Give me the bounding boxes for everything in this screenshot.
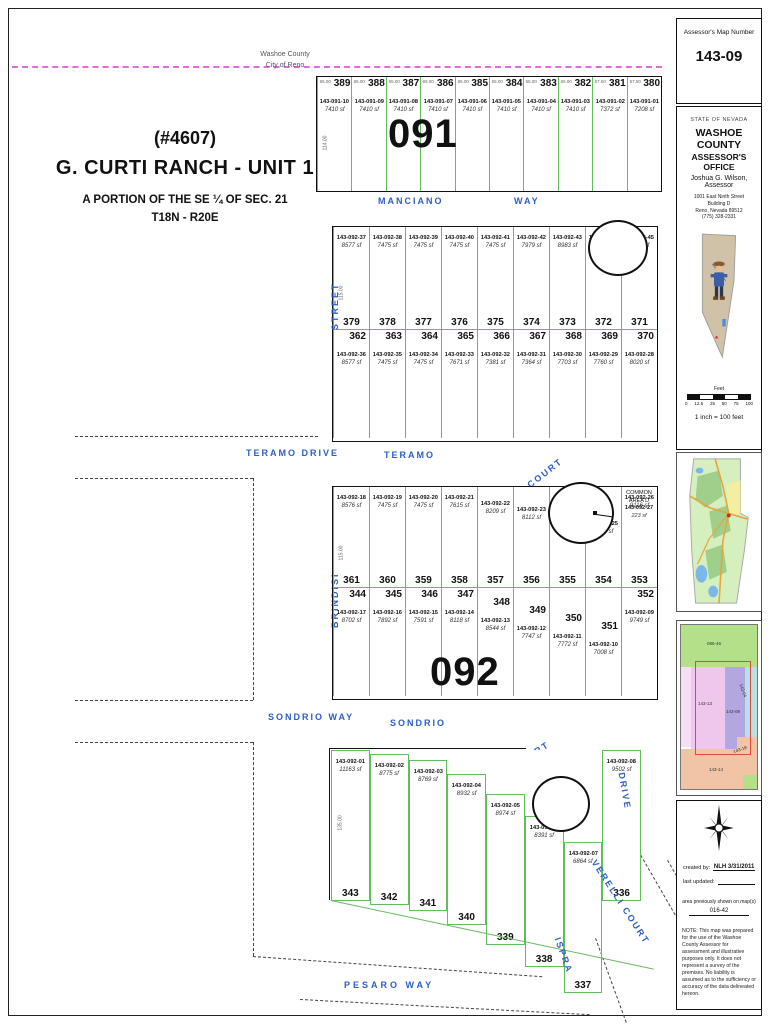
frontage-dimension: 65.00: [457, 79, 468, 84]
lot-number: 386: [437, 79, 454, 89]
lot-number: 361: [343, 576, 360, 586]
parcel-area: 7410 sf: [462, 107, 482, 113]
parcel-area: 7475 sf: [486, 243, 506, 249]
lot-number: 347: [457, 590, 474, 600]
parcel-cell: 143-092-20 7475 sf 359: [405, 487, 441, 587]
map-number-value: 143-09: [677, 48, 761, 65]
lot-number: 380: [643, 79, 660, 89]
road-dash: [253, 478, 254, 700]
parcel-apn: 143-092-03: [413, 769, 442, 775]
parcel-area: 7671 sf: [450, 360, 470, 366]
parcel-cell: 363 143-092-35 7475 sf: [369, 330, 405, 438]
scale-bar: [687, 394, 751, 400]
parcel-apn: 143-092-02: [375, 763, 404, 769]
road-dash: [75, 478, 253, 479]
parcel-cell: 369 143-092-29 7760 sf: [585, 330, 621, 438]
parcel-area: 8577 sf: [342, 360, 362, 366]
block-092-south: 143-092-01 11163 sf 343 143-092-02 8775 …: [331, 750, 641, 900]
parcel-area: 8576 sf: [342, 503, 362, 509]
lot-number: 377: [415, 318, 432, 328]
lot-number: 337: [575, 981, 592, 991]
parcel-apn: 143-092-23: [517, 507, 546, 513]
parcel-apn: 143-092-29: [589, 352, 618, 358]
parcel-apn: 143-092-39: [409, 235, 438, 241]
parcel-apn: 143-092-12: [517, 626, 546, 632]
parcel-apn: 143-092-41: [481, 235, 510, 241]
title-block: (#4607) G. CURTI RANCH - UNIT 1 A PORTIO…: [40, 128, 330, 224]
common-area-marker: [593, 511, 597, 515]
parcel-apn: 143-091-08: [389, 99, 418, 105]
parcel-apn: 143-092-40: [445, 235, 474, 241]
parcel-cell: 143-092-38 7475 sf 378: [369, 227, 405, 329]
parcel-cell: 65.00 388 143-091-09 7410 sf: [351, 77, 385, 191]
scale-bar-group: Feet 0 12.5 25 50 75 100 1 inch = 100 fe…: [677, 386, 761, 421]
common-area-size: 223 sf: [612, 513, 666, 521]
street-sondrio-way: SONDRIO WAY: [268, 712, 354, 722]
parcel-apn: 143-092-08: [607, 759, 636, 765]
section-description: A PORTION OF THE SE ¼ OF SEC. 21: [40, 194, 330, 206]
parcel-area: 8577 sf: [342, 243, 362, 249]
lot-number: 345: [385, 590, 402, 600]
county-locator-panel: [676, 452, 762, 612]
last-updated-value: [718, 884, 756, 885]
notes-panel: created by: NLH 3/31/2011 last updated: …: [676, 800, 762, 1010]
parcel-area: 11163 sf: [339, 767, 361, 773]
state-label: STATE OF NEVADA: [677, 117, 761, 123]
parcel-apn: 143-091-07: [423, 99, 452, 105]
lot-number: 384: [506, 79, 523, 89]
parcel-apn: 143-092-38: [373, 235, 402, 241]
map-number-label: Assessor's Map Number: [677, 29, 761, 36]
parcel-apn: 143-092-33: [445, 352, 474, 358]
parcel-cell: 143-092-19 7475 sf 360: [369, 487, 405, 587]
parcel-apn: 143-092-30: [553, 352, 582, 358]
county-locator-map: [680, 456, 758, 606]
parcel-apn: 143-092-21: [445, 495, 474, 501]
parcel-area: 7208 sf: [635, 107, 655, 113]
parcel-apn: 143-092-14: [445, 610, 474, 616]
scale-ticks: 0 12.5 25 50 75 100: [685, 401, 753, 406]
common-area-apn: 143-092-27: [612, 505, 666, 513]
parcel-apn: 143-092-42: [517, 235, 546, 241]
lot-number: 364: [421, 332, 438, 342]
parcel-apn: 143-091-01: [630, 99, 659, 105]
index-label-bottom-left: 143-14: [709, 767, 723, 772]
parcel-apn: 143-092-18: [337, 495, 366, 501]
parcel-apn: 143-092-04: [452, 783, 481, 789]
created-by-row: created by: NLH 3/31/2011: [683, 864, 755, 871]
street-manciano-way: WAY: [514, 196, 540, 206]
lot-number: 349: [529, 606, 546, 616]
road-dash: [75, 742, 253, 743]
lot-number: 366: [493, 332, 510, 342]
lot-number: 354: [595, 576, 612, 586]
frontage-dimension: 65.00: [320, 79, 331, 84]
parcel-apn: 143-092-09: [625, 610, 654, 616]
culdesac-bulb: [548, 482, 614, 544]
parcel-area: 8544 sf: [486, 626, 506, 632]
county-label: WASHOE COUNTY: [677, 127, 761, 151]
street-manciano: MANCIANO: [378, 196, 444, 206]
street-sondrio: SONDRIO: [390, 718, 446, 728]
parcel-area: 7892 sf: [378, 618, 398, 624]
parcel-cell: 143-092-02 8775 sf 342: [370, 754, 409, 905]
parcel-area: 8974 sf: [496, 811, 516, 817]
parcel-cell: 143-092-03 8769 sf 341: [409, 760, 448, 911]
municipal-boundary-label: Washoe County City of Reno: [230, 50, 340, 71]
parcel-area: 7772 sf: [558, 642, 578, 648]
office-label: ASSESSOR'S OFFICE: [677, 152, 761, 172]
parcel-apn: 143-092-36: [337, 352, 366, 358]
frontage-dimension: 65.00: [492, 79, 503, 84]
last-updated-row: last updated:: [683, 879, 755, 885]
assessor-map-page: Washoe County City of Reno (#4607) G. CU…: [0, 0, 770, 1024]
parcel-apn: 143-092-11: [553, 634, 582, 640]
lot-number: 359: [415, 576, 432, 586]
lot-number: 373: [559, 318, 576, 328]
parcel-apn: 143-091-06: [458, 99, 487, 105]
lot-number: 360: [379, 576, 396, 586]
subdivision-permit: (#4607): [40, 128, 330, 149]
parcel-area: 7008 sf: [594, 650, 614, 656]
office-panel: STATE OF NEVADA WASHOE COUNTY ASSESSOR'S…: [676, 106, 762, 450]
culdesac-bulb: [532, 776, 590, 832]
parcel-area: 8391 sf: [534, 833, 554, 839]
index-label-top: 086-46: [707, 641, 721, 646]
parcel-apn: 143-092-17: [337, 610, 366, 616]
lot-number: 368: [565, 332, 582, 342]
lot-number: 353: [631, 576, 648, 586]
parcel-cell: 345 143-092-16 7892 sf: [369, 588, 405, 696]
previous-maps-label: area previously shown on map(s): [677, 899, 761, 905]
parcel-cell: 143-092-18 8576 sf 361: [333, 487, 369, 587]
parcel-apn: 143-092-05: [491, 803, 520, 809]
frontage-dimension: 65.00: [526, 79, 537, 84]
parcel-cell: 344 143-092-17 8702 sf: [333, 588, 369, 696]
parcel-cell: 143-092-41 7475 sf 375: [477, 227, 513, 329]
scale-note: 1 inch = 100 feet: [677, 414, 761, 421]
lot-number: 375: [487, 318, 504, 328]
lot-number: 363: [385, 332, 402, 342]
parcel-apn: 143-092-31: [517, 352, 546, 358]
office-address: 1001 East Ninth Street Building D Reno, …: [677, 194, 761, 221]
parcel-area: 7475 sf: [378, 243, 398, 249]
side-dimension: 114.00: [322, 136, 328, 151]
road-edge: [329, 748, 330, 900]
parcel-cell: 65.00 384 143-091-05 7410 sf: [489, 77, 523, 191]
parcel-cell: 143-092-05 8974 sf 339: [486, 794, 525, 945]
parcel-apn: 143-092-32: [481, 352, 510, 358]
parcel-area: 7475 sf: [378, 360, 398, 366]
parcel-apn: 143-092-28: [625, 352, 654, 358]
lot-number: 367: [529, 332, 546, 342]
parcel-area: 9749 sf: [630, 618, 650, 624]
frontage-dimension: 67.50: [629, 79, 640, 84]
road-dash: [75, 436, 318, 437]
parcel-cell: 367 143-092-31 7364 sf: [513, 330, 549, 438]
parcel-cell: 67.50 381 143-091-02 7372 sf: [592, 77, 626, 191]
lot-number: 378: [379, 318, 396, 328]
lot-number: 343: [342, 889, 359, 899]
lot-number: 385: [471, 79, 488, 89]
parcel-area: 8769 sf: [418, 777, 438, 783]
culdesac-bulb: [588, 220, 648, 276]
parcel-area: 7364 sf: [522, 360, 542, 366]
parcel-area: 7703 sf: [558, 360, 578, 366]
parcel-cell: 143-092-39 7475 sf 377: [405, 227, 441, 329]
parcel-apn: 143-092-19: [373, 495, 402, 501]
parcel-cell: 352 143-092-09 9749 sf: [621, 588, 657, 696]
lot-number: 383: [540, 79, 557, 89]
previous-maps-value: 016-42: [689, 908, 749, 916]
assessor-name: Joshua G. Wilson, Assessor: [677, 175, 761, 189]
parcel-cell: 370 143-092-28 8020 sf: [621, 330, 657, 438]
parcel-area: 7979 sf: [522, 243, 542, 249]
parcel-area: 8775 sf: [379, 771, 399, 777]
lot-number: 374: [523, 318, 540, 328]
index-map: 086-46 143-13 143-09 143-04 143-14 143-1…: [680, 624, 758, 790]
parcel-apn: 143-092-10: [589, 642, 618, 648]
parcel-area: 8702 sf: [342, 618, 362, 624]
road-dash: [253, 742, 254, 956]
parcel-apn: 143-092-16: [373, 610, 402, 616]
parcel-area: 8209 sf: [486, 509, 506, 515]
side-dimension: 135.00: [338, 815, 344, 830]
index-map-panel: 086-46 143-13 143-09 143-04 143-14 143-1…: [676, 620, 762, 796]
parcel-apn: 143-091-09: [355, 99, 384, 105]
lot-number: 341: [420, 899, 437, 909]
parcel-area: 7372 sf: [600, 107, 620, 113]
parcel-apn: 143-091-10: [320, 99, 349, 105]
parcel-apn: 143-092-15: [409, 610, 438, 616]
lot-number: 372: [595, 318, 612, 328]
lot-number: 358: [451, 576, 468, 586]
disclaimer-note: NOTE: This map was prepared for the use …: [682, 928, 756, 998]
street-word: STREET: [330, 282, 340, 330]
parcel-area: 7591 sf: [414, 618, 434, 624]
compass-rose: [702, 805, 736, 851]
lot-number: 352: [637, 590, 654, 600]
created-by-value: NLH 3/31/2011: [713, 864, 755, 871]
parcel-area: 8983 sf: [558, 243, 578, 249]
parcel-area: 8020 sf: [630, 360, 650, 366]
parcel-area: 7410 sf: [497, 107, 517, 113]
lot-number: 387: [403, 79, 420, 89]
parcel-cell: 143-092-23 8112 sf 356: [513, 487, 549, 587]
lot-number: 365: [457, 332, 474, 342]
block-number-092: 092: [430, 650, 500, 695]
parcel-area: 7475 sf: [414, 243, 434, 249]
parcel-cell: 349 143-092-12 7747 sf: [513, 588, 549, 696]
parcel-area: 7410 sf: [566, 107, 586, 113]
parcel-area: 7475 sf: [414, 503, 434, 509]
lot-number: 344: [349, 590, 366, 600]
frontage-dimension: 65.00: [560, 79, 571, 84]
parcel-cell: 65.00 389 143-091-10 7410 sf: [317, 77, 351, 191]
parcel-cell: 65.00 382 143-091-03 7410 sf: [558, 77, 592, 191]
parcel-cell: 143-092-21 7615 sf 358: [441, 487, 477, 587]
parcel-cell: 351 143-092-10 7008 sf: [585, 588, 621, 696]
lot-number: 355: [559, 576, 576, 586]
lot-number: 376: [451, 318, 468, 328]
parcel-cell: 143-092-40 7475 sf 376: [441, 227, 477, 329]
lot-number: 338: [536, 955, 553, 965]
last-updated-label: last updated:: [683, 879, 715, 885]
parcel-apn: 143-092-20: [409, 495, 438, 501]
parcel-cell: 67.50 380 143-091-01 7208 sf: [627, 77, 661, 191]
lot-number: 381: [609, 79, 626, 89]
parcel-apn: 143-092-13: [481, 618, 510, 624]
road-dash: [75, 700, 253, 701]
parcel-area: 7475 sf: [450, 243, 470, 249]
lot-number: 379: [343, 318, 360, 328]
road-edge: [330, 748, 526, 749]
parcel-cell: 362 143-092-36 8577 sf: [333, 330, 369, 438]
parcel-area: 7410 sf: [531, 107, 551, 113]
parcel-area: 8932 sf: [457, 791, 477, 797]
street-teramo: TERAMO: [384, 450, 435, 460]
block-number-091: 091: [388, 112, 458, 157]
parcel-area: 7410 sf: [359, 107, 379, 113]
nevada-state-graphic: [694, 223, 744, 375]
block-091: 65.00 389 143-091-10 7410 sf 65.00 388 1…: [316, 76, 662, 192]
created-by-label: created by:: [683, 865, 710, 871]
parcel-apn: 143-092-43: [553, 235, 582, 241]
parcel-cell: 368 143-092-30 7703 sf: [549, 330, 585, 438]
subdivision-name: G. CURTI RANCH - UNIT 1: [40, 157, 330, 180]
lot-number: 382: [575, 79, 592, 89]
parcel-area: 8118 sf: [450, 618, 469, 624]
parcel-cell: 364 143-092-34 7475 sf: [405, 330, 441, 438]
lot-number: 348: [493, 598, 510, 608]
parcel-apn: 143-092-34: [409, 352, 438, 358]
lot-number: 356: [523, 576, 540, 586]
parcel-cell: 143-092-42 7979 sf 374: [513, 227, 549, 329]
parcel-row: 362 143-092-36 8577 sf 363 143-092-35 74…: [333, 330, 657, 438]
parcel-apn: 143-092-35: [373, 352, 402, 358]
lot-number: 362: [349, 332, 366, 342]
parcel-cell: 65.00 385 143-091-06 7410 sf: [455, 77, 489, 191]
lot-number: 340: [458, 913, 475, 923]
parcel-apn: 143-092-01: [336, 759, 365, 765]
street-pesaro-way: PESARO WAY: [344, 980, 434, 990]
parcel-apn: 143-092-37: [337, 235, 366, 241]
lot-number: 388: [368, 79, 385, 89]
township-range: T18N - R20E: [40, 212, 330, 224]
parcel-area: 8112 sf: [522, 515, 541, 521]
lot-number: 371: [631, 318, 648, 328]
side-dimension: 115.00: [338, 546, 344, 561]
current-map-highlight: [695, 661, 751, 755]
parcel-apn: 143-091-04: [527, 99, 556, 105]
parcel-apn: 143-092-07: [568, 851, 597, 857]
lot-number: 351: [601, 622, 618, 632]
parcel-apn: 143-091-02: [595, 99, 624, 105]
parcel-cell: 65.00 383 143-091-04 7410 sf: [523, 77, 557, 191]
parcel-cell: 143-092-04 8932 sf 340: [447, 774, 486, 925]
frontage-dimension: 67.50: [595, 79, 606, 84]
frontage-dimension: 65.00: [423, 79, 434, 84]
parcel-cell: 366 143-092-32 7381 sf: [477, 330, 513, 438]
lot-number: 342: [381, 893, 398, 903]
lot-number: 389: [334, 79, 351, 89]
parcel-area: 7410 sf: [325, 107, 345, 113]
frontage-dimension: 65.00: [388, 79, 399, 84]
parcel-cell: 350 143-092-11 7772 sf: [549, 588, 585, 696]
parcel-area: 7760 sf: [594, 360, 614, 366]
scale-units-label: Feet: [677, 386, 761, 392]
parcel-cell: 365 143-092-33 7671 sf: [441, 330, 477, 438]
lot-number: 346: [421, 590, 438, 600]
frontage-dimension: 65.00: [354, 79, 365, 84]
parcel-area: 7475 sf: [378, 503, 398, 509]
parcel-apn: 143-091-03: [561, 99, 590, 105]
street-teramo-drive: TERAMO DRIVE: [246, 448, 339, 458]
parcel-apn: 143-092-22: [481, 501, 510, 507]
common-area-callout: COMMON AREA D 143-092-27 223 sf: [612, 490, 666, 521]
lot-number: 350: [565, 614, 582, 624]
parcel-cell: 143-092-43 8983 sf 373: [549, 227, 585, 329]
map-number-panel: Assessor's Map Number 143-09: [676, 18, 762, 104]
parcel-area: 7747 sf: [522, 634, 542, 640]
parcel-apn: 143-091-05: [492, 99, 521, 105]
parcel-area: 7381 sf: [486, 360, 506, 366]
lot-number: 369: [601, 332, 618, 342]
parcel-area: 7615 sf: [450, 503, 470, 509]
lot-number: 370: [637, 332, 654, 342]
parcel-cell: 143-092-22 8209 sf 357: [477, 487, 513, 587]
parcel-area: 7475 sf: [414, 360, 434, 366]
lot-number: 357: [487, 576, 504, 586]
